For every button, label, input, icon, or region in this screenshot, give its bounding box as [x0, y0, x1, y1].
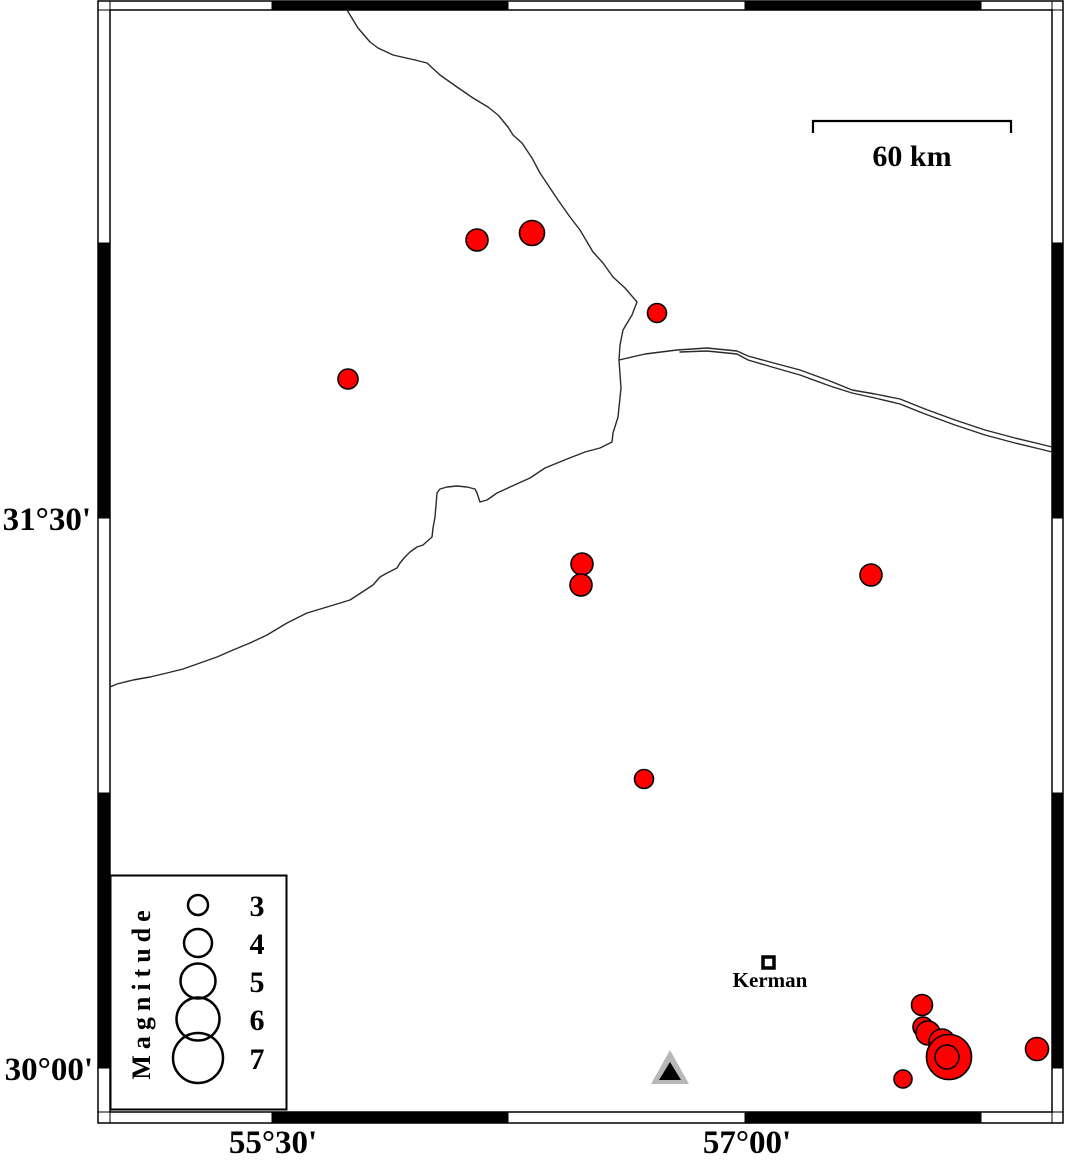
frame-segment-top [981, 1, 1052, 10]
frame-segment-top [272, 1, 508, 10]
lat-label-30-00: 30°00' [5, 1052, 93, 1088]
city-square-icon [763, 957, 774, 968]
frame-segment-left [98, 1068, 110, 1112]
legend-title: Magnitude [127, 904, 156, 1079]
east-line-a [619, 348, 1052, 447]
frame-segment-bottom [110, 1112, 272, 1123]
scale-bar-bracket [813, 121, 1011, 133]
scale-bar: 60 km [813, 121, 1011, 173]
epicenter-circle [894, 1070, 912, 1088]
legend-magnitude-label: 6 [250, 1004, 265, 1037]
epicenter-circle [338, 369, 358, 389]
epicenter-circle [571, 553, 593, 575]
frame-segment-bottom [508, 1112, 745, 1123]
frame-segment-bottom [745, 1112, 981, 1123]
frame-segment-top [110, 1, 272, 10]
seismic-station-marker [651, 1050, 689, 1084]
legend-magnitude-label: 7 [250, 1043, 265, 1076]
frame-segment-left [98, 243, 110, 518]
lon-label-55-30: 55°30' [229, 1125, 317, 1161]
lon-label-57-00: 57°00' [703, 1125, 791, 1161]
epicenter-circle [635, 770, 654, 789]
legend-magnitude-label: 5 [250, 966, 265, 999]
frame-segment-top [508, 1, 745, 10]
frame-segment-right [1052, 793, 1063, 1068]
epicenter-circle [648, 304, 667, 323]
frame-segment-top [745, 1, 981, 10]
epicenter-circle [570, 574, 592, 596]
epicenter-circle [466, 229, 488, 251]
east-line-b [680, 351, 1052, 452]
frame-segment-right [1052, 243, 1063, 518]
epicenter-circle [935, 1045, 959, 1069]
epicenter-circle [912, 995, 933, 1016]
seismicity-map: Kerman 60 km 31°30' 30°00' 55°30' 57°00'… [0, 0, 1066, 1161]
frame-segment-right [1052, 1068, 1063, 1112]
legend-magnitude-label: 4 [250, 928, 265, 961]
epicenter-circle [1026, 1038, 1049, 1061]
earthquake-epicenters [338, 221, 1049, 1089]
lat-label-31-30: 31°30' [3, 502, 91, 538]
frame-segment-left [98, 518, 110, 793]
city-marker-kerman: Kerman [733, 957, 808, 992]
frame-segment-bottom [272, 1112, 508, 1123]
southwest-line [110, 360, 621, 687]
frame-segment-right [1052, 10, 1063, 243]
frame-segment-bottom [981, 1112, 1052, 1123]
frame-segment-right [1052, 518, 1063, 793]
frame-segment-left [98, 10, 110, 243]
city-label: Kerman [733, 968, 808, 992]
epicenter-circle [520, 221, 545, 246]
legend-magnitude-label: 3 [250, 890, 265, 923]
seismicity-map-page: Kerman 60 km 31°30' 30°00' 55°30' 57°00'… [0, 0, 1066, 1161]
magnitude-legend: Magnitude 34567 [111, 876, 287, 1110]
epicenter-circle [860, 564, 882, 586]
scale-bar-label: 60 km [872, 140, 951, 173]
north-river-line [347, 10, 637, 360]
frame-segment-left [98, 793, 110, 1068]
